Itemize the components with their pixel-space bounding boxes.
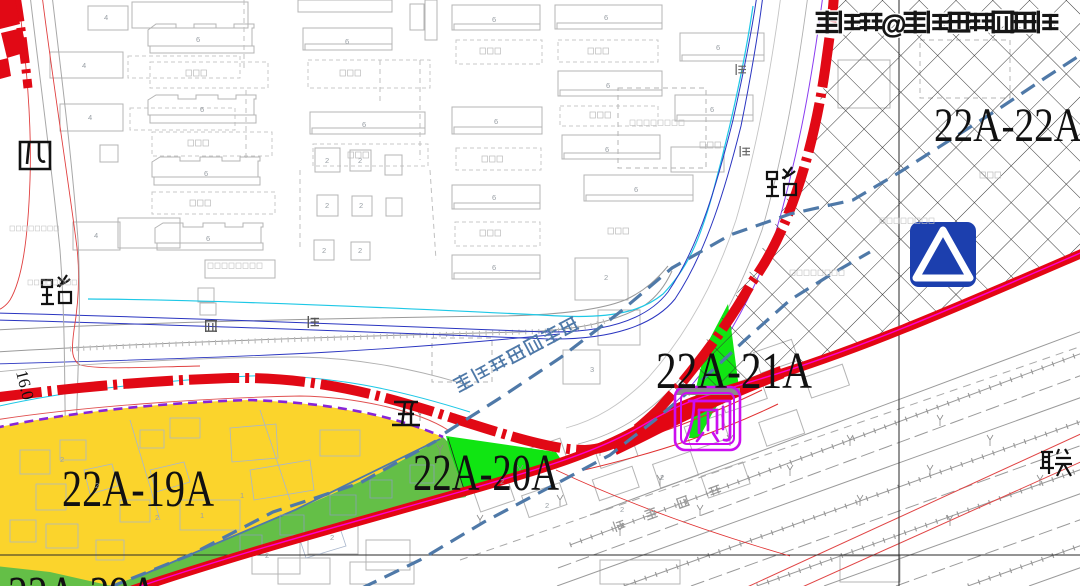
svg-text:2: 2 — [155, 513, 159, 522]
svg-text:2: 2 — [500, 477, 504, 486]
svg-text:6: 6 — [196, 35, 200, 44]
svg-text:22A-21A: 22A-21A — [656, 343, 812, 400]
svg-text:2: 2 — [620, 505, 624, 514]
svg-text:6: 6 — [716, 43, 720, 52]
svg-text:4: 4 — [94, 231, 98, 240]
svg-text:6: 6 — [492, 263, 496, 272]
svg-text:6: 6 — [206, 234, 210, 243]
svg-text:22A-20A: 22A-20A — [413, 445, 559, 502]
svg-text:3: 3 — [590, 365, 594, 374]
svg-text:6: 6 — [200, 105, 204, 114]
svg-text:6: 6 — [606, 81, 610, 90]
svg-text:6: 6 — [604, 13, 608, 22]
svg-text:2: 2 — [330, 533, 334, 542]
svg-text:4: 4 — [104, 13, 108, 22]
svg-text:6: 6 — [492, 15, 496, 24]
svg-text:22A-22A: 22A-22A — [934, 99, 1080, 152]
svg-text:2: 2 — [359, 201, 363, 210]
svg-text:6: 6 — [204, 169, 208, 178]
svg-text:4: 4 — [82, 61, 86, 70]
svg-text:2: 2 — [95, 481, 99, 490]
svg-text:2: 2 — [60, 455, 64, 464]
svg-text:@: @ — [881, 9, 906, 39]
svg-text:6: 6 — [634, 185, 638, 194]
svg-text:2: 2 — [325, 156, 329, 165]
svg-text:2: 2 — [604, 273, 608, 282]
svg-text:6: 6 — [362, 120, 366, 129]
svg-text:2: 2 — [265, 551, 269, 560]
svg-text:2: 2 — [358, 156, 362, 165]
svg-text:1: 1 — [240, 491, 244, 500]
svg-text:22A-29A: 22A-29A — [8, 567, 158, 586]
svg-text:6: 6 — [605, 145, 609, 154]
svg-text:2: 2 — [660, 473, 664, 482]
svg-text:6: 6 — [710, 105, 714, 114]
svg-text:6: 6 — [345, 37, 349, 46]
svg-text:22A-19A: 22A-19A — [62, 461, 214, 518]
svg-text:6: 6 — [492, 193, 496, 202]
svg-text:4: 4 — [88, 113, 92, 122]
svg-text:2: 2 — [545, 501, 549, 510]
svg-text:6: 6 — [494, 117, 498, 126]
svg-text:2: 2 — [322, 246, 326, 255]
svg-text:2: 2 — [358, 246, 362, 255]
svg-text:2: 2 — [325, 201, 329, 210]
svg-text:1: 1 — [200, 511, 204, 520]
